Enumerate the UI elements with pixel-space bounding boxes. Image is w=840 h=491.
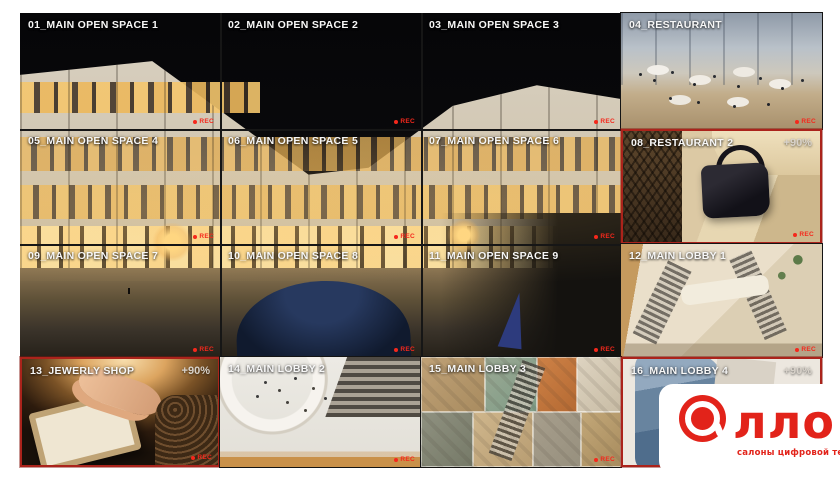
rec-indicator: REC <box>193 346 214 353</box>
rec-indicator: REC <box>795 346 816 353</box>
rec-text: REC <box>199 233 214 240</box>
restaurant-tables <box>647 65 669 75</box>
rec-text: REC <box>400 118 415 125</box>
cctv-monitor-page: { "labels": { "rec": "REC" }, "colors": … <box>0 0 840 491</box>
rec-indicator: REC <box>193 118 214 125</box>
rec-text: REC <box>199 346 214 353</box>
allo-a-tail <box>712 421 724 438</box>
camera-tile-11[interactable]: 11_MAIN OPEN SPACE 9 REC <box>421 244 621 357</box>
camera-tile-09[interactable]: 09_MAIN OPEN SPACE 7 REC <box>20 244 220 357</box>
rec-dot-icon <box>193 120 197 124</box>
camera-tile-14[interactable]: 14_MAIN LOBBY 2 REC <box>220 357 421 467</box>
camera-label: 10_MAIN OPEN SPACE 8 <box>228 250 358 262</box>
escalator-shape <box>633 260 692 345</box>
rec-indicator: REC <box>793 231 814 238</box>
camera-label: 07_MAIN OPEN SPACE 6 <box>429 135 559 147</box>
camera-label: 04_RESTAURANT <box>629 19 722 31</box>
camera-tile-04[interactable]: 04_RESTAURANT REC <box>621 13 822 129</box>
rec-dot-icon <box>594 348 598 352</box>
rec-dot-icon <box>793 233 797 237</box>
rec-indicator: REC <box>394 456 415 463</box>
camera-label: 09_MAIN OPEN SPACE 7 <box>28 250 158 262</box>
rec-indicator: REC <box>394 118 415 125</box>
allo-tagline: салоны цифровой техники <box>737 448 840 458</box>
camera-label: 05_MAIN OPEN SPACE 4 <box>28 135 158 147</box>
camera-tile-01[interactable]: 01_MAIN OPEN SPACE 1 REC <box>20 13 220 129</box>
rec-indicator: REC <box>594 118 615 125</box>
rec-indicator: REC <box>191 454 212 461</box>
restaurant-chairs <box>639 73 642 76</box>
camera-tile-02[interactable]: 02_MAIN OPEN SPACE 2 REC <box>220 13 421 129</box>
camera-label: 12_MAIN LOBBY 1 <box>629 250 726 262</box>
camera-label: 16_MAIN LOBBY 4 <box>631 365 728 377</box>
rec-text: REC <box>199 118 214 125</box>
camera-tile-12[interactable]: 12_MAIN LOBBY 1 REC <box>621 244 822 357</box>
rec-text: REC <box>600 456 615 463</box>
rec-indicator: REC <box>193 233 214 240</box>
camera-label: 06_MAIN OPEN SPACE 5 <box>228 135 358 147</box>
rec-text: REC <box>400 233 415 240</box>
rec-dot-icon <box>394 348 398 352</box>
rec-indicator: REC <box>795 118 816 125</box>
camera-tile-07[interactable]: 07_MAIN OPEN SPACE 6 REC <box>421 129 621 244</box>
rec-dot-icon <box>191 456 195 460</box>
handbag-shape <box>700 163 770 220</box>
rec-dot-icon <box>594 235 598 239</box>
camera-label: 08_RESTAURANT 2 <box>631 137 733 149</box>
rec-dot-icon <box>193 235 197 239</box>
camera-label: 14_MAIN LOBBY 2 <box>228 363 325 375</box>
camera-label: 13_JEWERLY SHOP <box>30 365 134 377</box>
escalator-shape <box>325 357 421 416</box>
rec-indicator: REC <box>394 233 415 240</box>
rec-text: REC <box>600 118 615 125</box>
rec-indicator: REC <box>394 346 415 353</box>
rec-text: REC <box>799 231 814 238</box>
rec-dot-icon <box>394 458 398 462</box>
rec-dot-icon <box>594 458 598 462</box>
rec-text: REC <box>197 454 212 461</box>
camera-label: 03_MAIN OPEN SPACE 3 <box>429 19 559 31</box>
camera-tile-13[interactable]: 13_JEWERLY SHOP +90% REC <box>20 357 220 467</box>
rec-text: REC <box>600 346 615 353</box>
camera-label: 15_MAIN LOBBY 3 <box>429 363 526 375</box>
allo-a-icon <box>679 395 726 442</box>
camera-tile-03[interactable]: 03_MAIN OPEN SPACE 3 REC <box>421 13 621 129</box>
camera-tile-15[interactable]: 15_MAIN LOBBY 3 REC <box>421 357 621 467</box>
rec-dot-icon <box>594 120 598 124</box>
camera-label: 02_MAIN OPEN SPACE 2 <box>228 19 358 31</box>
rec-text: REC <box>801 346 816 353</box>
camera-tile-05[interactable]: 05_MAIN OPEN SPACE 4 REC <box>20 129 220 244</box>
rec-indicator: REC <box>594 456 615 463</box>
camera-tile-10[interactable]: 10_MAIN OPEN SPACE 8 REC <box>220 244 421 357</box>
camera-tile-08[interactable]: 08_RESTAURANT 2 +90% REC <box>621 129 822 244</box>
zoom-level-badge: +90% <box>784 137 812 149</box>
rec-dot-icon <box>795 120 799 124</box>
camera-label: 11_MAIN OPEN SPACE 9 <box>429 250 559 262</box>
rec-text: REC <box>400 346 415 353</box>
rec-text: REC <box>600 233 615 240</box>
rec-text: REC <box>400 456 415 463</box>
rec-dot-icon <box>394 120 398 124</box>
rec-indicator: REC <box>594 346 615 353</box>
people-dots <box>264 381 267 384</box>
allo-logo: лло салоны цифровой техники <box>659 384 840 475</box>
zoom-level-badge: +90% <box>182 365 210 377</box>
rec-dot-icon <box>795 348 799 352</box>
allo-wordmark: лло <box>733 399 835 445</box>
rec-indicator: REC <box>594 233 615 240</box>
rec-text: REC <box>801 118 816 125</box>
zoom-level-badge: +90% <box>784 365 812 377</box>
rec-dot-icon <box>193 348 197 352</box>
rec-dot-icon <box>394 235 398 239</box>
camera-tile-06[interactable]: 06_MAIN OPEN SPACE 5 REC <box>220 129 421 244</box>
camera-label: 01_MAIN OPEN SPACE 1 <box>28 19 158 31</box>
